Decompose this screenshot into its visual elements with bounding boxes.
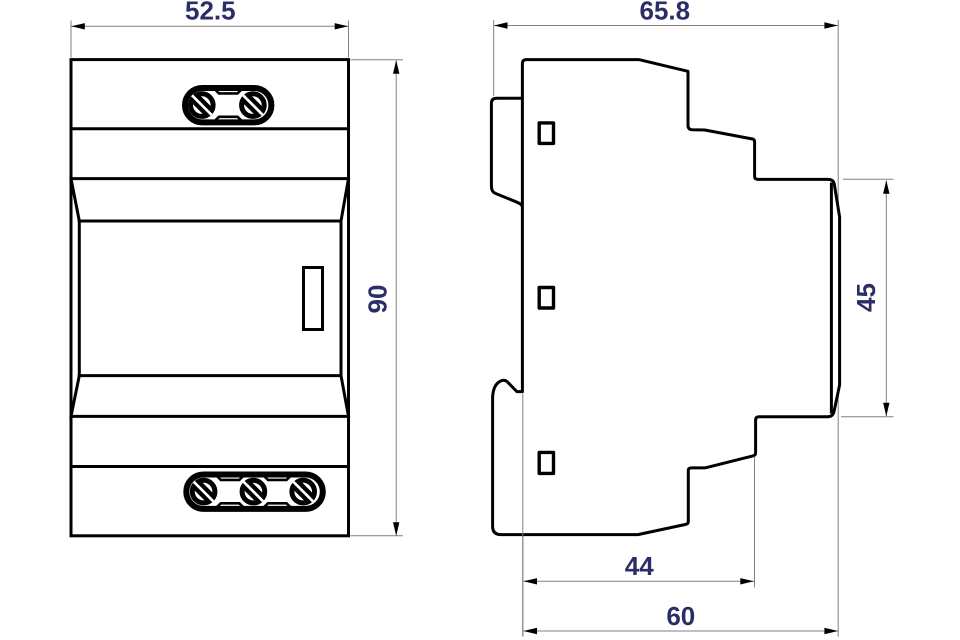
svg-text:52.5: 52.5 bbox=[185, 0, 236, 26]
svg-text:90: 90 bbox=[363, 285, 393, 314]
svg-text:45: 45 bbox=[851, 283, 881, 312]
svg-text:60: 60 bbox=[666, 601, 695, 631]
svg-text:44: 44 bbox=[625, 551, 654, 581]
svg-text:65.8: 65.8 bbox=[639, 0, 690, 26]
